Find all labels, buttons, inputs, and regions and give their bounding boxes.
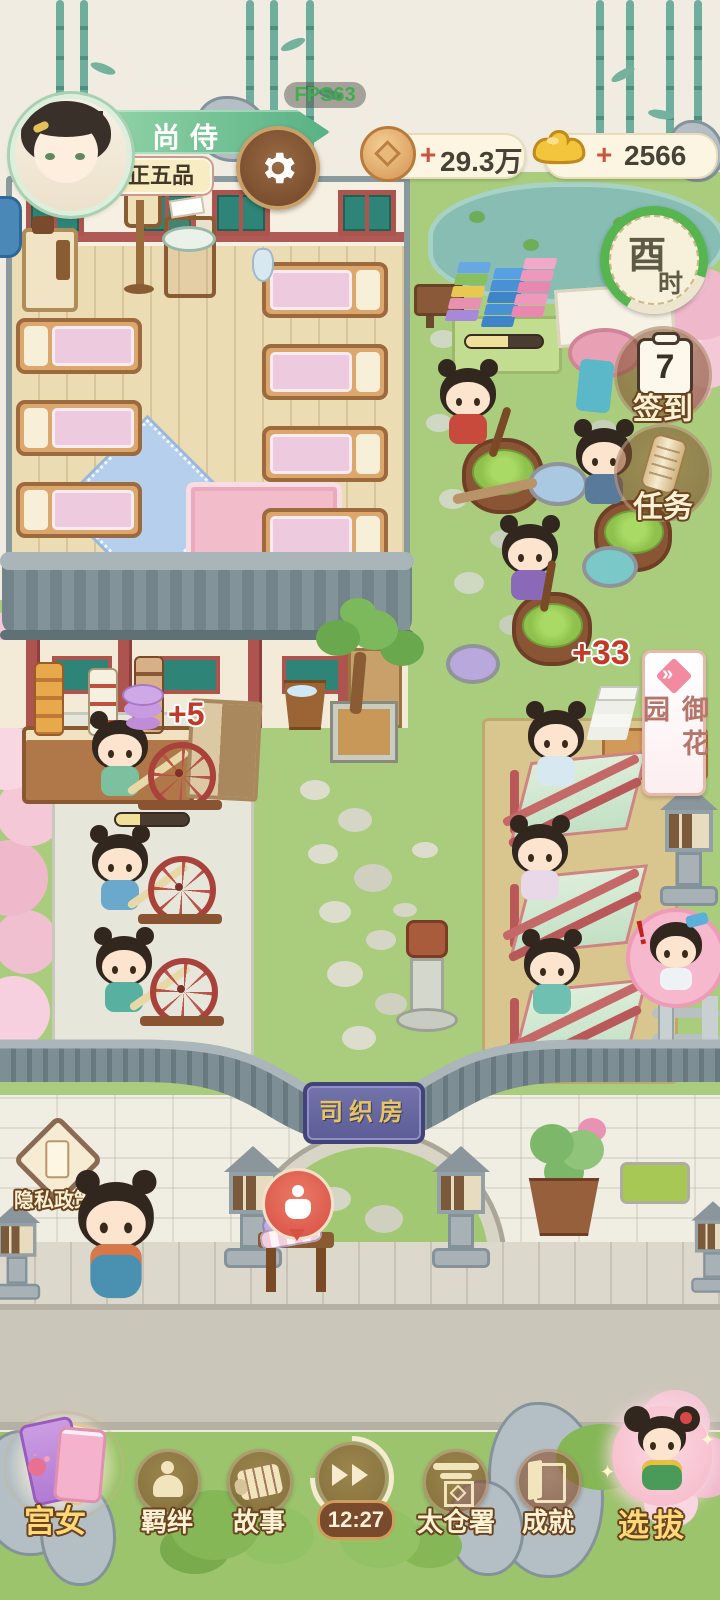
lantern-box (0, 1223, 36, 1257)
woven-fabric-stack (596, 686, 640, 701)
face (102, 950, 146, 984)
gold-ingot-icon (528, 122, 590, 166)
edge-button-partial[interactable] (0, 196, 22, 258)
eye (474, 398, 480, 406)
progress-bar (466, 336, 542, 347)
add-ingots-button[interactable]: + (596, 139, 612, 171)
lotus-pot (524, 1170, 604, 1236)
face (508, 538, 552, 572)
scroll-icon (45, 1140, 69, 1178)
eye (558, 968, 564, 976)
clothes-icon-head (292, 1185, 304, 1197)
lantern-column (7, 1257, 28, 1284)
eye (664, 950, 670, 958)
incense-jar (406, 920, 448, 958)
time-char-2: 时 (658, 264, 683, 300)
temple-beam-icon (440, 1473, 472, 1479)
fabric-stack-rainbow (457, 262, 492, 273)
dress (449, 414, 487, 444)
table-leg (316, 1248, 326, 1292)
chengjiu-label[interactable]: 成就 (522, 1502, 574, 1539)
roof-ridge (0, 552, 414, 570)
npc-face (656, 936, 696, 968)
dress (521, 870, 559, 900)
maid-weaver[interactable] (524, 702, 588, 798)
wash-bowl (162, 226, 216, 252)
progress-fill (466, 336, 508, 347)
blanket (270, 516, 352, 556)
pillow (356, 434, 380, 474)
candidate-face (643, 1428, 681, 1460)
lamp-base (124, 284, 154, 294)
coin-icon (360, 126, 416, 182)
tasks-label: 任务 (633, 482, 693, 526)
lantern-box (695, 1221, 720, 1253)
stone-path (300, 780, 330, 800)
temple-roof-icon (433, 1463, 479, 1470)
bed[interactable] (262, 262, 388, 318)
sparkle-icon: ✦ (600, 1462, 615, 1483)
pillow (356, 270, 380, 310)
sparkle-icon: ✦ (700, 1430, 715, 1451)
taicang-label[interactable]: 太仓署 (417, 1502, 495, 1539)
bed[interactable] (262, 426, 388, 482)
blossom-icon (28, 1458, 46, 1476)
face (534, 724, 578, 758)
lantern-box (665, 810, 713, 852)
eye (592, 458, 598, 466)
eye (126, 864, 132, 872)
bamboo-leaf (279, 36, 307, 53)
eye (108, 864, 114, 872)
eye (540, 968, 546, 976)
fabric-stack-pink (523, 258, 558, 269)
gushi-label[interactable]: 故事 (233, 1502, 285, 1539)
blanket (270, 434, 352, 474)
blanket (52, 408, 134, 448)
game-screen: +5 +33 (0, 0, 720, 1600)
eye (108, 750, 114, 758)
lantern-column (448, 1214, 474, 1248)
speedup-timer: 12:27 (317, 1500, 395, 1540)
open-door-icon (528, 1460, 542, 1500)
road (0, 1304, 720, 1430)
lantern-column (676, 852, 702, 886)
bonsai-planter (333, 704, 395, 760)
xuanba-button[interactable] (612, 1406, 712, 1506)
player-avatar[interactable] (10, 94, 132, 216)
pillow (356, 352, 380, 392)
blanket (52, 326, 134, 366)
table-leg (266, 1248, 276, 1292)
water-basin (446, 644, 500, 684)
bonsai-foliage (316, 620, 360, 656)
wooden-sign (414, 284, 464, 316)
floating-reward: +33 (572, 634, 630, 673)
eye (668, 1442, 674, 1450)
wall-plaque (620, 1162, 690, 1204)
bed[interactable] (16, 318, 142, 374)
stone-lantern (432, 1146, 490, 1268)
lantern-base (432, 1248, 490, 1268)
gate-plaque: 司织房 (303, 1082, 425, 1144)
fast-forward-icon (352, 1464, 368, 1486)
blanket (52, 490, 134, 530)
stone-lantern (691, 1201, 720, 1293)
npc-bubble[interactable]: ! (626, 908, 720, 1008)
person-body-icon (153, 1475, 183, 1497)
wheel-base (140, 1016, 224, 1026)
face (518, 838, 562, 872)
hair-bow (685, 912, 709, 929)
cabinet[interactable] (22, 228, 78, 312)
player-name: 尚侍 (152, 116, 228, 156)
lantern-base (0, 1284, 40, 1300)
hair-bun (624, 1406, 650, 1432)
dress (90, 1244, 141, 1298)
thread-spools-orange (34, 662, 64, 736)
floating-reward: +5 (168, 696, 204, 733)
eye (546, 854, 552, 862)
eye (562, 740, 568, 748)
avatar-eye (45, 153, 55, 160)
ingot-amount: 2566 (624, 140, 686, 172)
clothes-icon (285, 1185, 311, 1219)
wheel-base (138, 914, 222, 924)
bamboo-leaf (89, 59, 116, 78)
face (98, 848, 142, 882)
maid-spinner[interactable] (88, 712, 152, 808)
imperial-garden-button[interactable]: » 御花园 (642, 650, 706, 796)
eye (130, 966, 136, 974)
lantern-column (703, 1252, 720, 1278)
person-icon (161, 1461, 174, 1474)
npc-dress (660, 968, 692, 990)
npc-maid[interactable] (73, 1171, 159, 1301)
card-pink-icon (53, 1426, 107, 1504)
delivery-bubble[interactable] (262, 1168, 334, 1240)
window (338, 190, 396, 236)
lantern-cap (224, 1146, 282, 1172)
face (446, 382, 490, 416)
clothes-icon-body (285, 1199, 311, 1219)
jiban-label[interactable]: 羁绊 (141, 1502, 193, 1539)
hanging-cloth (575, 358, 614, 413)
face (86, 1201, 145, 1247)
lily-pad (469, 211, 485, 223)
fabric-stack-blue (493, 268, 528, 279)
lantern-cap (432, 1146, 490, 1172)
blanket (270, 270, 352, 310)
eye (650, 1442, 656, 1450)
dress (533, 984, 571, 1014)
eye (124, 1223, 132, 1234)
lantern-box (437, 1172, 485, 1214)
gongnv-label[interactable]: 宫女 (24, 1496, 86, 1541)
pillow (24, 326, 48, 366)
wheel-base (138, 800, 222, 810)
pillow (356, 516, 380, 556)
gear-icon (257, 147, 299, 189)
dress (537, 756, 575, 786)
bed[interactable] (16, 400, 142, 456)
time-of-day-button[interactable]: 酉 时 (600, 206, 708, 314)
candidate-dress (642, 1460, 682, 1490)
maid-dyer[interactable] (436, 360, 500, 456)
xuanba-label[interactable]: 选拔 (618, 1500, 688, 1545)
face (530, 952, 574, 986)
tasks-button[interactable]: 任务 (614, 424, 712, 522)
maid-weaver[interactable] (508, 816, 572, 912)
settings-button[interactable] (236, 126, 320, 210)
avatar-eye (75, 153, 85, 160)
stone-lantern (660, 784, 718, 906)
water-bucket[interactable] (282, 680, 328, 730)
imperial-garden-label: 御花园 (635, 695, 713, 793)
pedestal-base (396, 1008, 458, 1032)
face (98, 734, 142, 768)
vase (252, 248, 274, 282)
eye (518, 554, 524, 562)
lily-pad (523, 239, 539, 251)
add-coins-button[interactable]: + (420, 139, 436, 171)
lotus-leaves (530, 1124, 574, 1164)
alert-exclamation: ! (632, 913, 651, 954)
maid-spinner[interactable] (92, 928, 156, 1024)
eye (112, 966, 118, 974)
pillow (24, 408, 48, 448)
maid-weaver[interactable] (520, 930, 584, 1026)
pillow (24, 490, 48, 530)
eye (528, 854, 534, 862)
silk-cocoon-stack (122, 684, 164, 706)
pedestal-column (410, 958, 444, 1012)
fast-forward-icon (332, 1464, 348, 1486)
lantern-base (660, 886, 718, 906)
eye (100, 1223, 108, 1234)
bed[interactable] (262, 344, 388, 400)
blanket (270, 352, 352, 392)
window (160, 656, 220, 694)
lamp-pole (136, 200, 144, 288)
progress-bar (116, 814, 188, 825)
stone-lantern (0, 1202, 40, 1300)
eye (126, 750, 132, 758)
pot (524, 1178, 604, 1236)
sign-in-label: 签到 (633, 384, 693, 428)
progress-fill (116, 814, 140, 825)
eye (536, 554, 542, 562)
fps-counter: FPS63 (284, 82, 366, 108)
coin-amount: 29.3万 (440, 140, 523, 180)
eye (544, 740, 550, 748)
eye (456, 398, 462, 406)
lantern-base (691, 1278, 720, 1293)
hair-flower (680, 1412, 692, 1424)
water-basin (582, 546, 638, 588)
sign-in-button[interactable]: 7 签到 (614, 326, 712, 424)
chevron-right-icon: » (662, 661, 688, 687)
maid-spinner[interactable] (88, 826, 152, 922)
bed[interactable] (16, 482, 142, 538)
stone-pedestal (396, 920, 458, 1032)
eye (682, 950, 688, 958)
lantern-cap (691, 1201, 720, 1221)
